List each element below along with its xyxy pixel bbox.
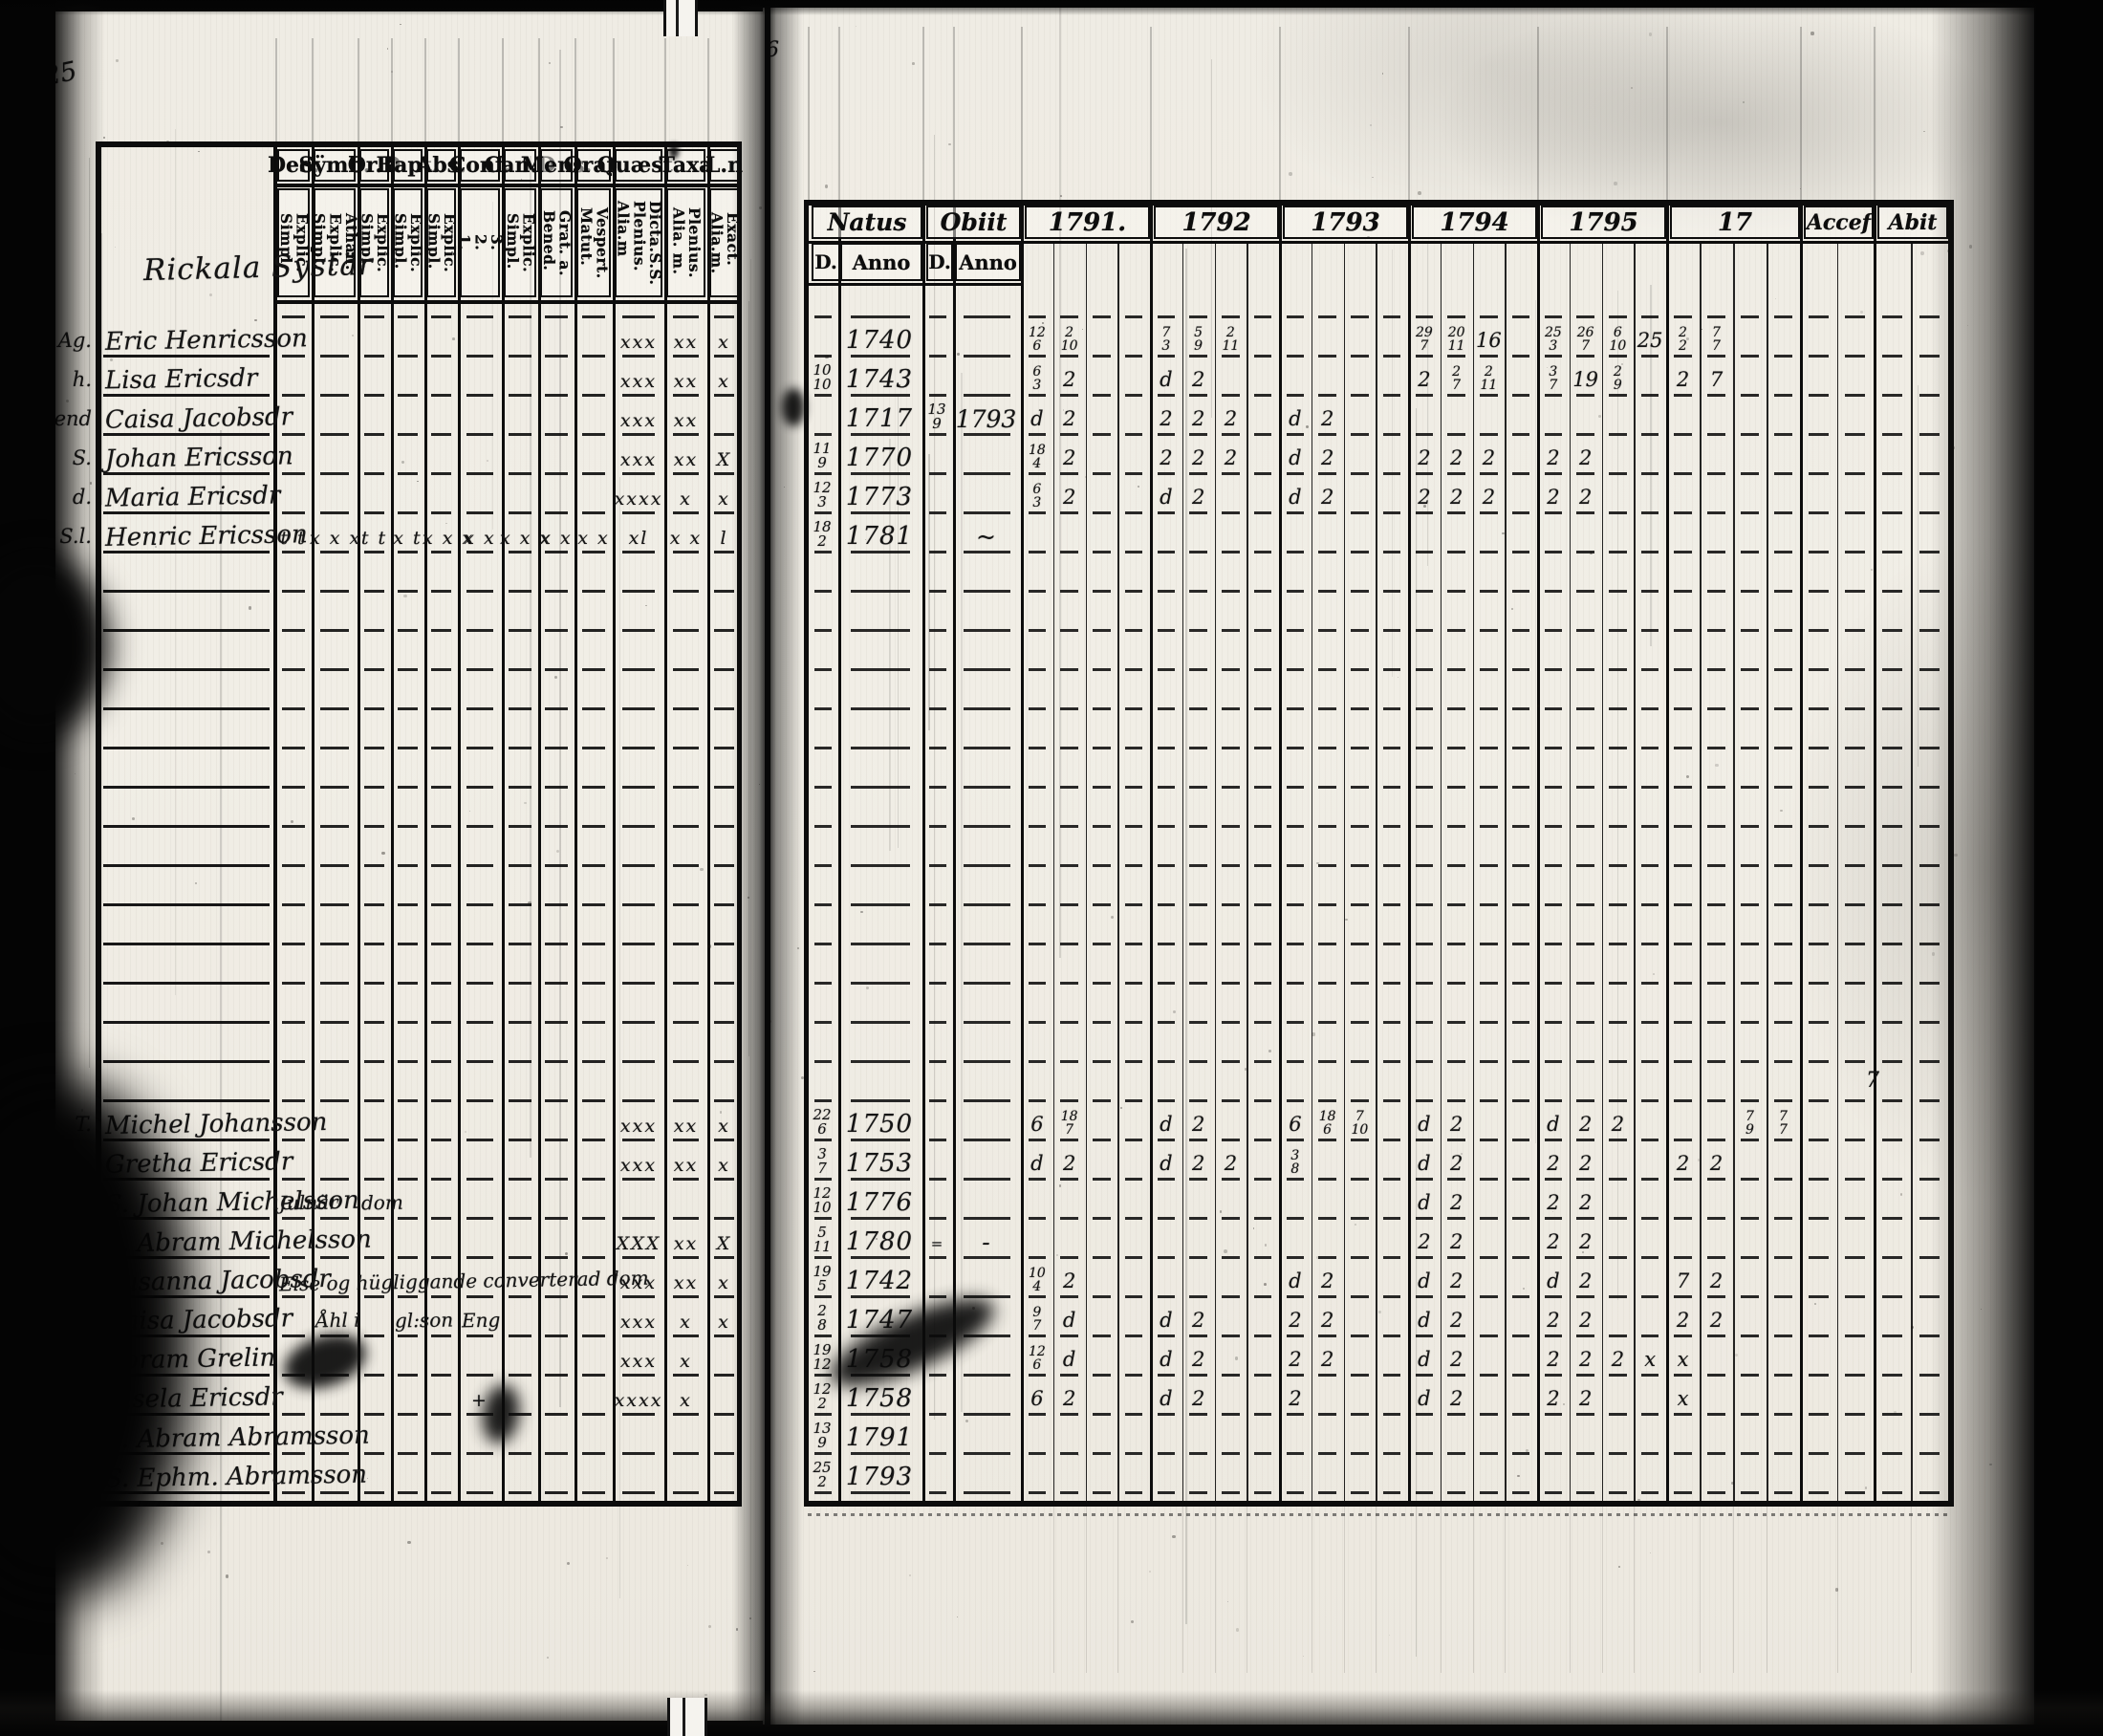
communion-mark: 211 bbox=[1472, 365, 1507, 392]
dotted-line-dot bbox=[988, 1513, 992, 1516]
row-dash bbox=[1189, 786, 1207, 789]
dotted-line-dot bbox=[1608, 1513, 1612, 1516]
row-dash bbox=[964, 1060, 1011, 1063]
row-dash bbox=[320, 472, 349, 475]
communion-mark: 2 bbox=[1441, 1152, 1473, 1175]
entry-name: Eric Henricsson bbox=[105, 324, 308, 357]
row-dash bbox=[1029, 472, 1047, 475]
row-dash bbox=[1512, 1178, 1530, 1181]
dotted-line-dot bbox=[1875, 1513, 1878, 1516]
dotted-line-dot bbox=[1083, 1513, 1087, 1516]
row-dash bbox=[1707, 629, 1725, 632]
paper-speckle bbox=[1865, 1486, 1867, 1488]
row-dash bbox=[1480, 433, 1498, 436]
row-dash bbox=[1416, 825, 1434, 828]
row-dash bbox=[1480, 315, 1498, 318]
natus-anno-value: 1780 bbox=[838, 1227, 921, 1256]
row-dash bbox=[1125, 511, 1143, 514]
natus-anno-value: 1717 bbox=[838, 404, 921, 433]
row-dash bbox=[929, 707, 946, 710]
row-dash bbox=[1809, 551, 1829, 553]
natus-day-label: D. bbox=[814, 250, 837, 273]
row-dash bbox=[1809, 355, 1829, 358]
row-dash bbox=[1125, 433, 1143, 436]
communion-mark: x bbox=[1634, 1348, 1666, 1371]
dotted-line-dot bbox=[885, 1513, 889, 1516]
row-dash bbox=[1416, 747, 1434, 749]
paper-speckle bbox=[1085, 476, 1087, 478]
paper-speckle bbox=[1894, 1411, 1897, 1414]
abiit-label: Abit bbox=[1889, 210, 1938, 235]
row-dash bbox=[1512, 1256, 1530, 1259]
row-dash bbox=[1287, 864, 1305, 867]
column-subheader-label: Plenius.Alia. m. bbox=[670, 207, 702, 278]
row-dash bbox=[1674, 864, 1692, 867]
row-dash bbox=[1318, 1452, 1336, 1455]
row-dash bbox=[1674, 1021, 1692, 1024]
row-dash bbox=[320, 1099, 349, 1102]
paper-speckle bbox=[452, 337, 455, 340]
row-dash bbox=[509, 1021, 531, 1024]
ghost-column-line bbox=[458, 38, 460, 141]
row-dash bbox=[1125, 1295, 1143, 1298]
row-dash bbox=[582, 747, 606, 749]
row-dash bbox=[1707, 1178, 1725, 1181]
row-dash bbox=[1351, 1374, 1369, 1377]
natus-anno-value: 1793 bbox=[838, 1463, 921, 1491]
row-dash bbox=[1882, 1491, 1902, 1494]
row-dash bbox=[1576, 1217, 1594, 1220]
row-dash bbox=[851, 590, 910, 593]
communion-mark: 2 bbox=[1700, 1152, 1733, 1175]
row-dash bbox=[582, 1295, 606, 1298]
column-subheader-label: 3.2.1. bbox=[456, 234, 504, 250]
row-dash bbox=[1774, 629, 1792, 632]
communion-mark: 2 bbox=[1666, 1152, 1700, 1175]
row-dash bbox=[622, 786, 654, 789]
communion-mark: 2 bbox=[1279, 1387, 1312, 1410]
row-dash bbox=[1093, 786, 1111, 789]
row-dash bbox=[1318, 982, 1336, 985]
obiit-anno-value: 1793 bbox=[953, 405, 1019, 433]
left-column-line bbox=[575, 141, 577, 1501]
row-dash bbox=[1512, 1374, 1530, 1377]
row-dash bbox=[622, 864, 654, 867]
paper-speckle bbox=[957, 353, 960, 356]
entry-name: Maria Ericsdr bbox=[105, 481, 281, 512]
film-notch-bottom bbox=[667, 1698, 707, 1736]
row-dash bbox=[1845, 629, 1865, 632]
row-dash bbox=[1809, 943, 1829, 945]
row-dash bbox=[1674, 1256, 1692, 1259]
dotted-line-dot bbox=[1281, 1513, 1285, 1516]
row-dash bbox=[1189, 864, 1207, 867]
right-column-line bbox=[922, 200, 925, 1501]
row-dash bbox=[1882, 786, 1902, 789]
row-dash bbox=[1189, 1374, 1207, 1377]
year-label-1795-box: 1795 bbox=[1541, 206, 1666, 239]
dotted-line-dot bbox=[816, 1513, 820, 1516]
row-dash bbox=[1641, 1256, 1659, 1259]
row-dash bbox=[466, 707, 494, 710]
page-content-layer: Dec.Explic.Simpl.Sÿmb.Athan.Explic.Simpl… bbox=[0, 0, 2103, 1736]
row-dash bbox=[1254, 1335, 1272, 1337]
row-dash bbox=[622, 433, 654, 436]
row-dash bbox=[1318, 1178, 1336, 1181]
row-dash bbox=[1576, 943, 1594, 945]
row-dash bbox=[398, 668, 419, 671]
attendance-marks: x t bbox=[389, 528, 426, 549]
natus-anno-value: 1753 bbox=[838, 1149, 921, 1178]
row-dash bbox=[1480, 1256, 1498, 1259]
row-dash bbox=[1512, 786, 1530, 789]
dotted-line-dot bbox=[1126, 1513, 1130, 1516]
row-dash bbox=[1254, 1178, 1272, 1181]
row-dash bbox=[1029, 747, 1047, 749]
paper-speckle bbox=[170, 356, 172, 358]
communion-mark: 97 bbox=[1020, 1306, 1054, 1333]
row-dash bbox=[673, 943, 700, 945]
row-dash bbox=[1774, 315, 1792, 318]
row-dash bbox=[1480, 511, 1498, 514]
paper-speckle bbox=[1860, 311, 1862, 313]
year-label-1792-box: 1792 bbox=[1154, 206, 1279, 239]
row-dash bbox=[1845, 707, 1865, 710]
communion-mark: d bbox=[1408, 1309, 1441, 1332]
row-dash bbox=[1882, 511, 1902, 514]
row-dash bbox=[582, 1178, 606, 1181]
row-dash bbox=[1545, 590, 1563, 593]
row-dash bbox=[1707, 903, 1725, 906]
row-dash bbox=[582, 394, 606, 397]
row-dash bbox=[1093, 1452, 1111, 1455]
row-dash bbox=[364, 747, 385, 749]
row-dash bbox=[1254, 668, 1272, 671]
dotted-line-dot bbox=[1625, 1513, 1629, 1516]
row-dash bbox=[1845, 511, 1865, 514]
row-dash bbox=[1060, 1491, 1078, 1494]
paper-speckle bbox=[1264, 1283, 1267, 1286]
row-dash bbox=[282, 982, 305, 985]
communion-mark: 2 bbox=[1537, 446, 1570, 469]
obiit-anno-label-box: Anno bbox=[955, 243, 1021, 281]
row-dash bbox=[1125, 315, 1143, 318]
row-dash bbox=[398, 1060, 419, 1063]
attendance-marks: x bbox=[662, 1351, 709, 1372]
row-dash bbox=[320, 355, 349, 358]
name-row-line bbox=[103, 1021, 270, 1024]
row-dash bbox=[1641, 1491, 1659, 1494]
row-dash bbox=[1447, 786, 1465, 789]
row-dash bbox=[1222, 1452, 1240, 1455]
row-dash bbox=[1774, 511, 1792, 514]
row-dash bbox=[1741, 864, 1759, 867]
scratch-line bbox=[220, 430, 221, 1736]
row-dash bbox=[673, 668, 700, 671]
scratch-line bbox=[1059, 1, 1061, 957]
row-dash bbox=[851, 1491, 910, 1494]
ghost-subcolumn-line bbox=[1376, 1501, 1377, 1673]
row-dash bbox=[466, 433, 494, 436]
attendance-marks: xx bbox=[662, 449, 709, 470]
communion-mark: 2 bbox=[1441, 1309, 1473, 1332]
row-dash bbox=[929, 1256, 946, 1259]
communion-mark: 2 bbox=[1408, 1230, 1441, 1253]
row-dash bbox=[1287, 1256, 1305, 1259]
paper-speckle bbox=[487, 460, 488, 462]
row-dash bbox=[282, 590, 305, 593]
row-dash bbox=[1447, 943, 1465, 945]
row-dash bbox=[814, 355, 832, 358]
row-dash bbox=[1576, 707, 1594, 710]
paper-speckle bbox=[1582, 1251, 1584, 1253]
right-subcolumn-line bbox=[1505, 241, 1507, 1501]
row-dash bbox=[1254, 825, 1272, 828]
row-dash bbox=[622, 825, 654, 828]
row-dash bbox=[1416, 1139, 1434, 1141]
row-dash bbox=[1351, 472, 1369, 475]
row-dash bbox=[1480, 1217, 1498, 1220]
row-dash bbox=[1029, 903, 1047, 906]
year-label-1794-box: 1794 bbox=[1412, 206, 1537, 239]
communion-mark: 2 bbox=[1441, 1230, 1473, 1253]
communion-mark: 2 bbox=[1053, 1269, 1086, 1292]
row-dash bbox=[509, 982, 531, 985]
row-dash bbox=[1318, 472, 1336, 475]
row-dash bbox=[1318, 433, 1336, 436]
row-dash bbox=[1576, 903, 1594, 906]
row-dash bbox=[282, 1021, 305, 1024]
row-dash bbox=[1447, 1099, 1465, 1102]
paper-speckle bbox=[1780, 810, 1782, 812]
row-dash bbox=[814, 1374, 832, 1377]
row-dash bbox=[1882, 903, 1902, 906]
communion-mark: 104 bbox=[1020, 1267, 1054, 1293]
row-dash bbox=[851, 668, 910, 671]
communion-mark: 2 bbox=[1570, 1348, 1602, 1371]
row-dash bbox=[320, 433, 349, 436]
row-dash bbox=[1287, 1139, 1305, 1141]
row-dash bbox=[582, 707, 606, 710]
row-dash bbox=[1318, 1021, 1336, 1024]
row-dash bbox=[398, 1335, 419, 1337]
row-dash bbox=[1029, 1099, 1047, 1102]
row-dash bbox=[282, 472, 305, 475]
row-dash bbox=[1741, 747, 1759, 749]
row-dash bbox=[1189, 433, 1207, 436]
row-dash bbox=[1774, 747, 1792, 749]
right-subcolumn-line bbox=[1344, 241, 1346, 1501]
row-dash bbox=[466, 668, 494, 671]
row-dash bbox=[1576, 1374, 1594, 1377]
row-dash bbox=[1641, 786, 1659, 789]
row-dash bbox=[1882, 1295, 1902, 1298]
row-dash bbox=[1158, 315, 1176, 318]
row-dash bbox=[1774, 394, 1792, 397]
communion-mark: 2 bbox=[1537, 1387, 1570, 1410]
row-dash bbox=[509, 551, 531, 553]
paper-speckle bbox=[116, 59, 118, 61]
row-dash bbox=[1287, 943, 1305, 945]
attendance-marks: x bbox=[662, 1390, 709, 1411]
paper-speckle bbox=[270, 1453, 271, 1455]
name-row-line bbox=[103, 864, 270, 867]
row-dash bbox=[509, 1256, 531, 1259]
communion-mark: 2 bbox=[1537, 1152, 1570, 1175]
row-dash bbox=[509, 1452, 531, 1455]
row-dash bbox=[1254, 1060, 1272, 1063]
column-subheader-label: Vespert.Matut. bbox=[577, 207, 609, 279]
row-dash bbox=[1416, 864, 1434, 867]
row-dash bbox=[1029, 825, 1047, 828]
dotted-line-dot bbox=[1616, 1513, 1620, 1516]
row-dash bbox=[509, 511, 531, 514]
dotted-line-dot bbox=[1462, 1513, 1465, 1516]
row-dash bbox=[1741, 1021, 1759, 1024]
row-dash bbox=[545, 786, 568, 789]
row-dash bbox=[1882, 315, 1902, 318]
dotted-line-dot bbox=[1582, 1513, 1586, 1516]
row-dash bbox=[1480, 1295, 1498, 1298]
paper-speckle bbox=[616, 1274, 618, 1276]
row-dash bbox=[431, 394, 452, 397]
ghost-subcolumn-line bbox=[1570, 1501, 1571, 1673]
row-dash bbox=[1189, 747, 1207, 749]
row-dash bbox=[364, 668, 385, 671]
top-edge-fade bbox=[0, 0, 2103, 15]
row-dash bbox=[1158, 786, 1176, 789]
row-dash bbox=[1480, 629, 1498, 632]
row-dash bbox=[1774, 982, 1792, 985]
paper-speckle bbox=[1423, 345, 1426, 348]
row-dash bbox=[320, 551, 349, 553]
paper-speckle bbox=[115, 247, 116, 248]
row-dash bbox=[1809, 590, 1829, 593]
row-dash bbox=[466, 472, 494, 475]
communion-mark: d bbox=[1408, 1113, 1441, 1136]
row-dash bbox=[1189, 1491, 1207, 1494]
row-dash bbox=[1447, 1295, 1465, 1298]
row-dash bbox=[1189, 1256, 1207, 1259]
row-dash bbox=[1158, 707, 1176, 710]
row-dash bbox=[1480, 394, 1498, 397]
row-dash bbox=[851, 433, 910, 436]
communion-mark: 126 bbox=[1020, 1345, 1054, 1372]
row-dash bbox=[545, 1335, 568, 1337]
row-dash bbox=[1158, 551, 1176, 553]
row-dash bbox=[1383, 1491, 1401, 1494]
paper-speckle bbox=[1900, 1193, 1903, 1196]
row-dash bbox=[1416, 943, 1434, 945]
row-dash bbox=[929, 355, 946, 358]
row-dash bbox=[1287, 825, 1305, 828]
row-dash bbox=[1060, 825, 1078, 828]
row-dash bbox=[1882, 1217, 1902, 1220]
row-dash bbox=[1707, 1491, 1725, 1494]
row-dash bbox=[1809, 1374, 1829, 1377]
row-dash bbox=[1707, 747, 1725, 749]
row-dash bbox=[1576, 1139, 1594, 1141]
ghost-column-line bbox=[275, 38, 277, 141]
row-dash bbox=[1774, 1413, 1792, 1416]
communion-mark: 2 bbox=[1053, 1387, 1086, 1410]
row-dash bbox=[1158, 590, 1176, 593]
row-dash bbox=[1158, 1060, 1176, 1063]
row-dash bbox=[673, 1452, 700, 1455]
row-dash bbox=[466, 747, 494, 749]
row-dash bbox=[1318, 1256, 1336, 1259]
row-dash bbox=[364, 1374, 385, 1377]
row-dash bbox=[673, 551, 700, 553]
row-dash bbox=[851, 551, 910, 553]
row-dash bbox=[1447, 864, 1465, 867]
dotted-line-dot bbox=[1031, 1513, 1035, 1516]
row-dash bbox=[1447, 394, 1465, 397]
row-dash bbox=[1741, 511, 1759, 514]
row-dash bbox=[1287, 433, 1305, 436]
row-dash bbox=[1707, 982, 1725, 985]
row-dash bbox=[1512, 1413, 1530, 1416]
dotted-line-dot bbox=[1892, 1513, 1896, 1516]
dotted-line-dot bbox=[1040, 1513, 1044, 1516]
row-dash bbox=[431, 668, 452, 671]
row-dash bbox=[673, 394, 700, 397]
communion-mark: 2 bbox=[1408, 368, 1441, 391]
row-dash bbox=[1318, 825, 1336, 828]
paper-speckle bbox=[1653, 973, 1655, 975]
natus-anno-value: 1773 bbox=[838, 483, 921, 511]
row-dash bbox=[398, 1413, 419, 1416]
row-dash bbox=[1222, 315, 1240, 318]
row-dash bbox=[1512, 1491, 1530, 1494]
ghost-column-line bbox=[953, 27, 955, 200]
row-dash bbox=[1641, 1335, 1659, 1337]
row-dash bbox=[851, 315, 910, 318]
row-dash bbox=[622, 1217, 654, 1220]
row-dash bbox=[814, 1295, 832, 1298]
row-dash bbox=[1809, 472, 1829, 475]
paper-speckle bbox=[521, 179, 522, 180]
row-dash bbox=[320, 1491, 349, 1494]
dotted-line-dot bbox=[971, 1513, 975, 1516]
row-dash bbox=[964, 1413, 1011, 1416]
dotted-line-dot bbox=[1926, 1513, 1930, 1516]
row-dash bbox=[1254, 1139, 1272, 1141]
communion-mark: d bbox=[1150, 486, 1182, 509]
row-dash bbox=[851, 943, 910, 945]
communion-mark: d bbox=[1053, 1348, 1086, 1371]
row-dash bbox=[1674, 355, 1692, 358]
row-dash bbox=[1641, 1139, 1659, 1141]
attendance-marks: xx bbox=[662, 1116, 709, 1137]
row-dash bbox=[964, 1217, 1011, 1220]
row-dash bbox=[1707, 825, 1725, 828]
row-annotation: Åhl i bbox=[315, 1309, 360, 1333]
row-dash bbox=[1741, 1178, 1759, 1181]
row-dash bbox=[431, 355, 452, 358]
communion-mark: 2 bbox=[1570, 486, 1602, 509]
row-dash bbox=[282, 629, 305, 632]
dotted-line-dot bbox=[1376, 1513, 1379, 1516]
row-dash bbox=[1845, 747, 1865, 749]
communion-mark: 2 bbox=[1537, 1230, 1570, 1253]
row-dash bbox=[1222, 511, 1240, 514]
row-dash bbox=[1287, 1217, 1305, 1220]
row-dash bbox=[1383, 1413, 1401, 1416]
paper-speckle bbox=[1389, 1635, 1390, 1636]
natus-anno-value: 1770 bbox=[838, 444, 921, 472]
row-dash bbox=[509, 315, 531, 318]
